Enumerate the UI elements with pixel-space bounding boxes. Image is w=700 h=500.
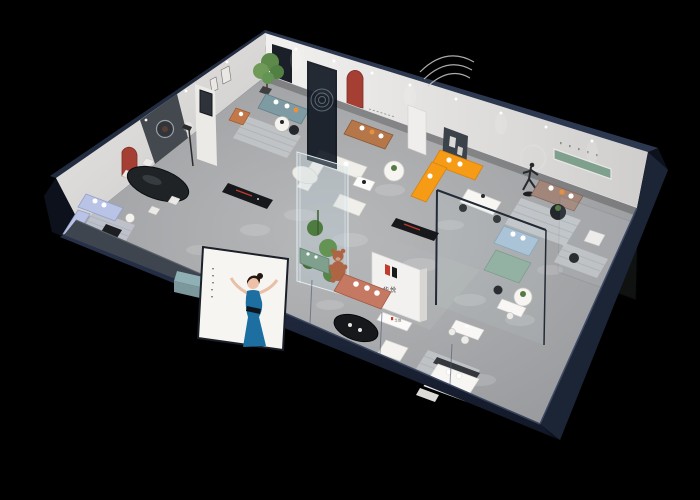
office-chair	[461, 336, 469, 344]
desk-papers	[465, 325, 469, 328]
table-decor	[358, 328, 362, 332]
logo-mark-black	[392, 267, 397, 279]
pillow-orange	[370, 130, 375, 135]
pillow-orange	[294, 108, 299, 113]
pillow	[548, 185, 553, 190]
doorframe-dark	[200, 90, 212, 116]
pillow	[285, 104, 290, 109]
table-decor	[348, 323, 352, 327]
pillow	[274, 100, 279, 105]
round-side-table-small	[289, 125, 299, 135]
pillow	[379, 134, 384, 139]
woman-hair-bun	[257, 273, 263, 279]
dark-etched-glass-partition	[308, 62, 336, 168]
showroom-render: 华悦 华悦	[0, 0, 700, 500]
logo-mark-red	[385, 264, 390, 276]
stool	[494, 286, 503, 295]
table-plant	[391, 165, 397, 171]
pillow	[102, 203, 107, 208]
bed-pillow	[456, 373, 462, 379]
logo-wall-side	[420, 268, 427, 322]
pillow	[364, 285, 370, 291]
display-item	[314, 255, 317, 258]
glass-frame-post	[436, 190, 437, 305]
divider-wall	[408, 105, 426, 155]
pillow	[446, 157, 451, 162]
white-round-table	[514, 288, 532, 306]
poster-board	[198, 247, 288, 350]
pillow-orange	[559, 189, 564, 194]
pillow	[457, 161, 462, 166]
counter-logo-mark	[391, 317, 393, 320]
framed-art	[449, 136, 456, 148]
scene-canvas: 华悦 华悦	[0, 0, 700, 500]
display-item	[306, 252, 309, 255]
pillow	[568, 193, 573, 198]
pillow	[353, 281, 359, 287]
pillow	[520, 235, 525, 240]
red-arch-niche	[347, 70, 363, 108]
pillow	[374, 290, 380, 296]
pillow	[510, 231, 515, 236]
table-plant	[520, 291, 526, 297]
office-chair	[507, 313, 514, 320]
table-decor	[481, 194, 485, 198]
table-vase	[362, 180, 366, 184]
counter-logo-text: 华悦	[395, 318, 403, 323]
side-table	[569, 253, 579, 263]
woman-poster	[198, 247, 288, 350]
pillow	[360, 126, 365, 131]
white-round-display-table	[384, 161, 404, 181]
pillow	[239, 112, 243, 116]
office-chair	[449, 329, 456, 336]
pillow	[93, 199, 98, 204]
pillow	[427, 173, 432, 178]
side-table	[126, 214, 135, 223]
